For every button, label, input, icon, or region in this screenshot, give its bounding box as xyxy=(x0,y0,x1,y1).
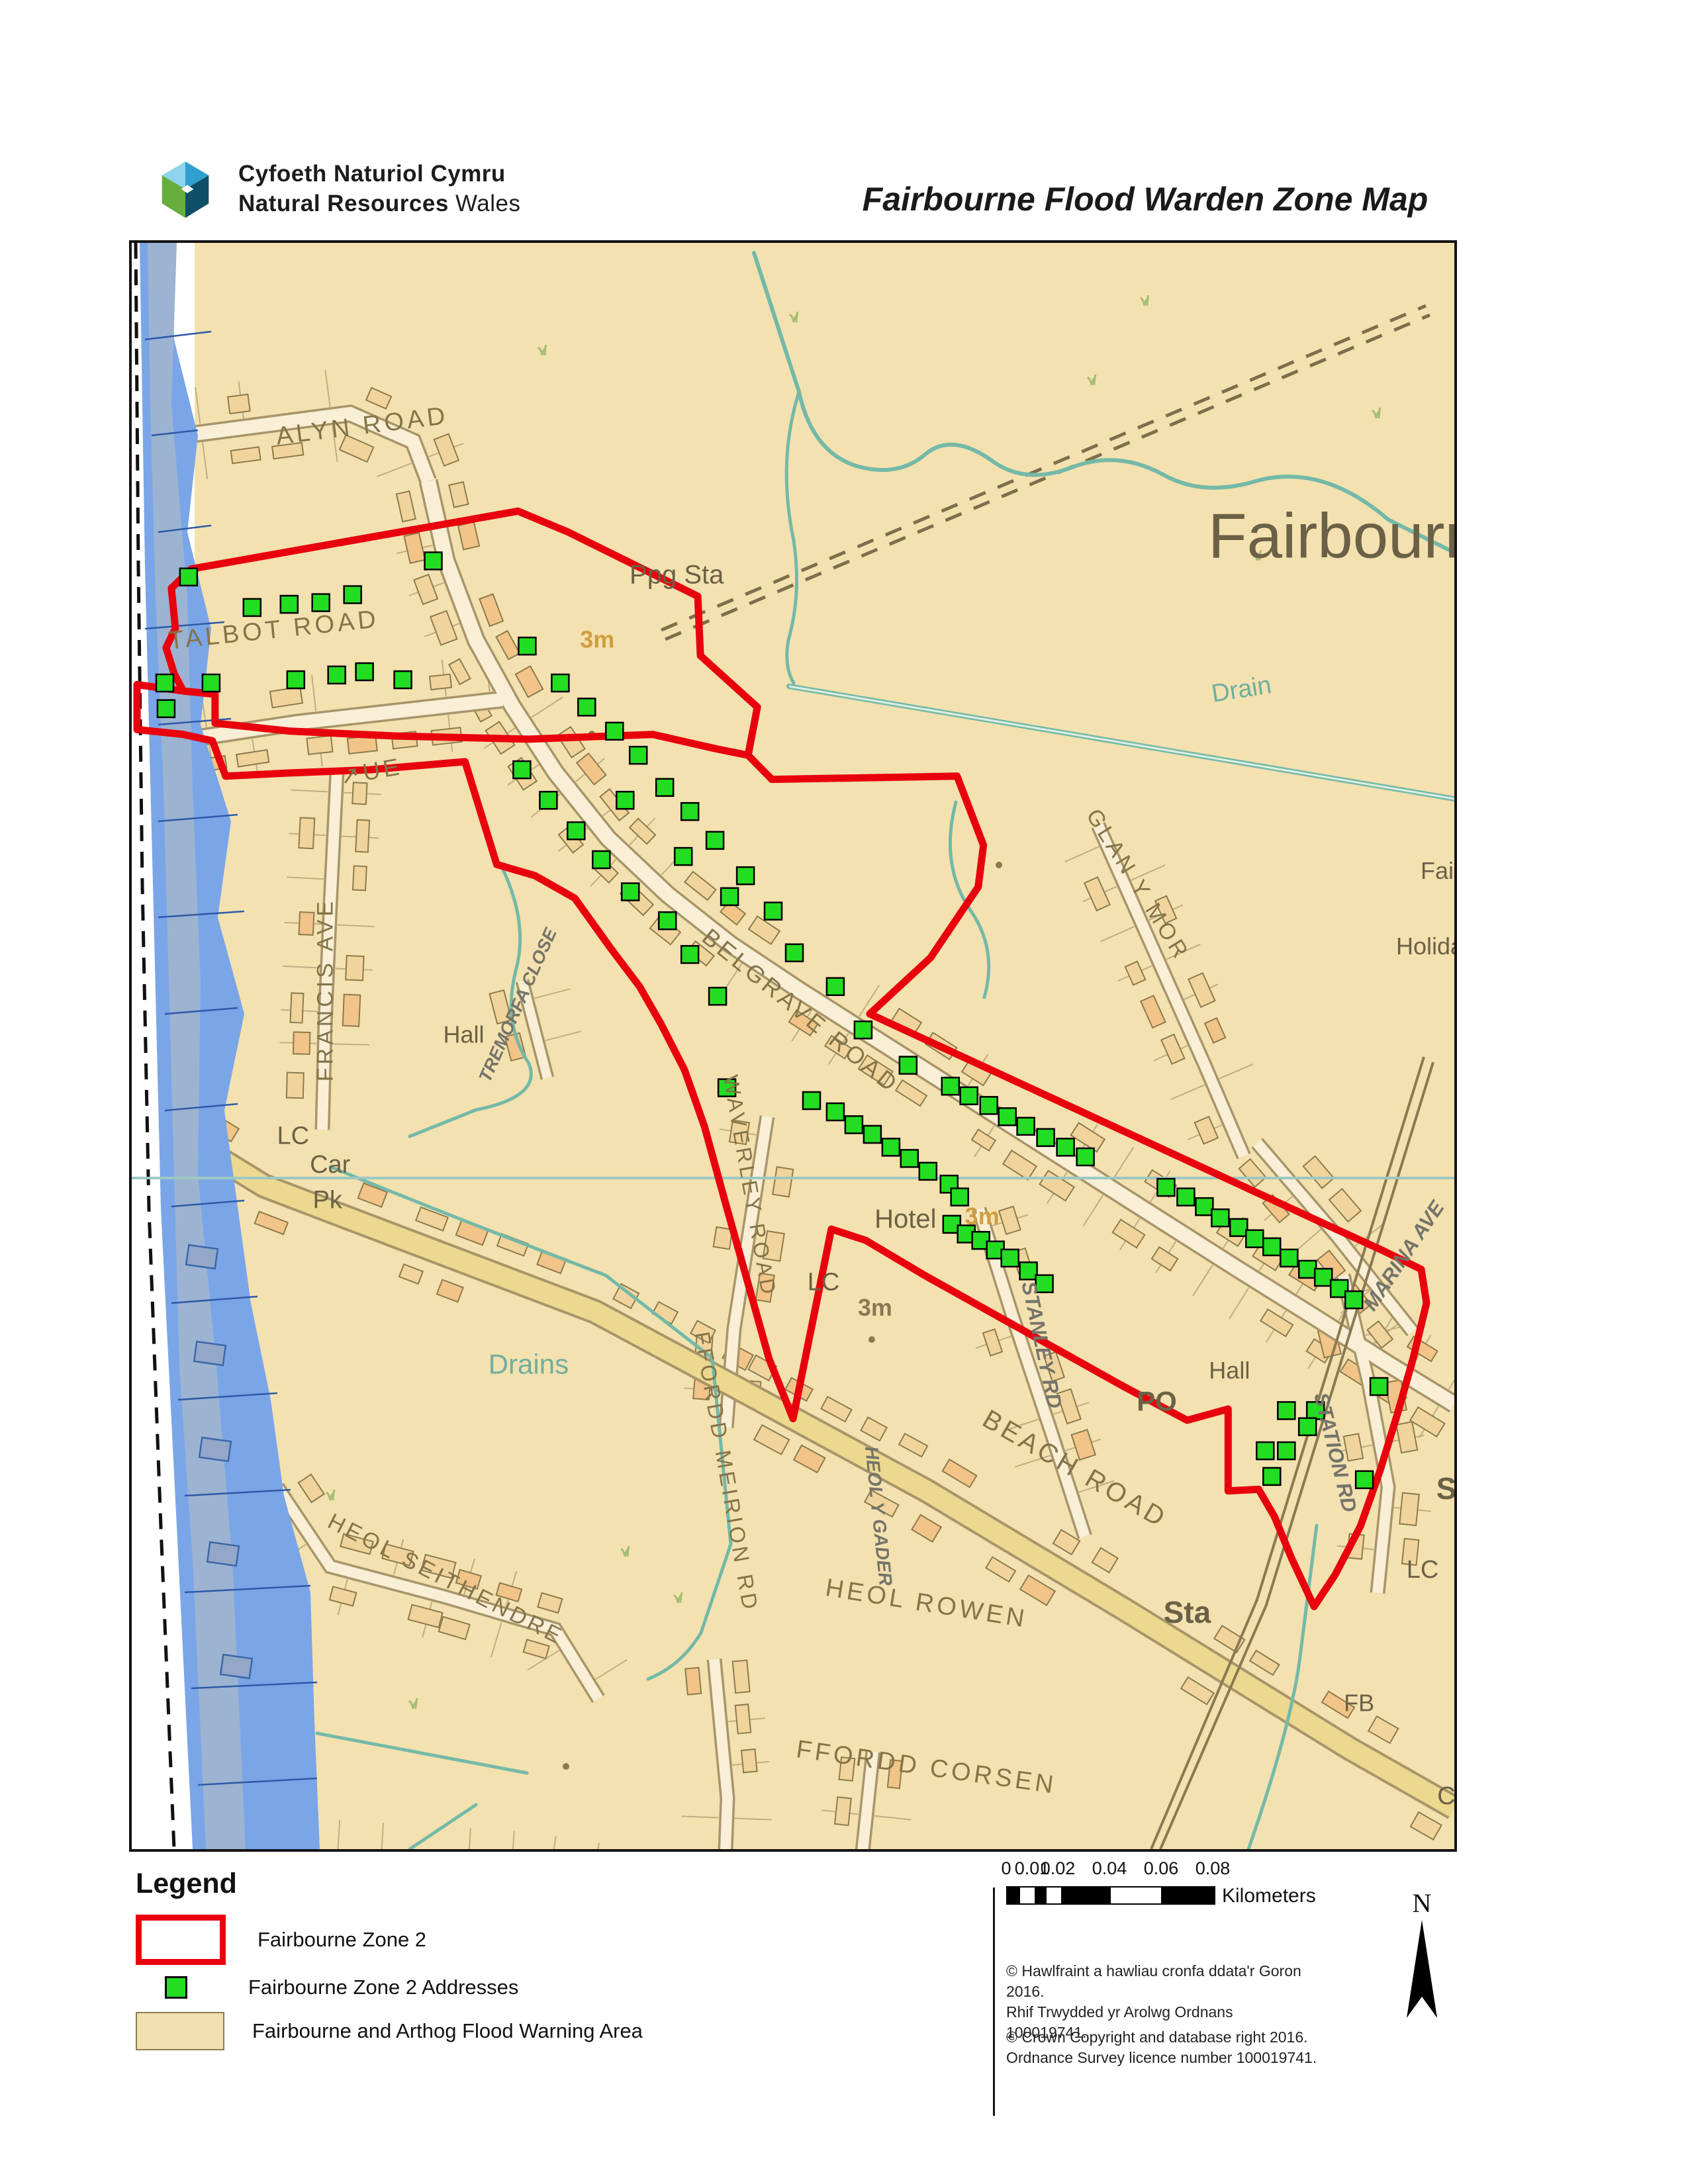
zone2-address-marker xyxy=(737,867,754,884)
zone2-address-marker xyxy=(287,671,305,688)
zone2-address-marker xyxy=(980,1097,998,1114)
map-label: LC xyxy=(1407,1556,1439,1584)
legend-item-zone: Fairbourne Zone 2 xyxy=(136,1915,426,1965)
org-name-english: Natural Resources Wales xyxy=(238,189,520,218)
zone2-address-marker xyxy=(578,698,595,715)
zone2-address-marker xyxy=(622,884,639,901)
map-label: 3m xyxy=(580,626,614,653)
flood-zone-map: ALYN ROADTALBOT ROADPpg StaFairbourneDra… xyxy=(129,240,1457,1852)
map-label: Fairbourne xyxy=(1208,501,1454,572)
scalebar-unit: Kilometers xyxy=(1222,1885,1316,1907)
zone2-address-marker xyxy=(425,553,442,570)
org-name-welsh: Cyfoeth Naturiol Cymru xyxy=(238,159,520,189)
zone2-address-marker xyxy=(1057,1138,1074,1156)
zone2-address-marker xyxy=(827,978,844,995)
zone2-address-marker xyxy=(203,674,220,692)
zone2-address-marker xyxy=(180,569,197,586)
zone2-address-marker xyxy=(1278,1402,1295,1419)
nrw-logo-text: Cyfoeth Naturiol Cymru Natural Resources… xyxy=(238,159,520,218)
zone2-address-marker xyxy=(681,803,698,820)
map-label: Hall xyxy=(443,1021,484,1048)
north-arrow-icon xyxy=(1399,1919,1445,2025)
map-label: LC xyxy=(277,1122,310,1150)
zone2-address-marker xyxy=(1020,1262,1037,1279)
map-label: 3m xyxy=(965,1203,1000,1230)
zone2-address-marker xyxy=(312,594,330,612)
north-label: N xyxy=(1395,1888,1448,1919)
map-label: 3m xyxy=(858,1294,892,1321)
zone2-address-marker xyxy=(1002,1250,1019,1267)
zone2-address-marker xyxy=(1077,1148,1094,1165)
legend-heading: Legend xyxy=(136,1868,237,1900)
zone2-address-marker xyxy=(1315,1269,1332,1286)
zone2-address-marker xyxy=(765,903,782,920)
north-arrow: N xyxy=(1395,1888,1448,2028)
legend-item-warning-area: Fairbourne and Arthog Flood Warning Area xyxy=(136,2012,643,2050)
map-label: FB xyxy=(1344,1689,1374,1716)
zone2-address-marker xyxy=(656,779,673,796)
zone2-address-marker xyxy=(942,1077,959,1095)
scalebar xyxy=(1006,1886,1215,1905)
zone2-address-marker xyxy=(630,747,647,764)
zone2-address-marker xyxy=(616,792,633,809)
zone2-address-marker xyxy=(845,1116,863,1133)
zone2-address-marker xyxy=(855,1021,872,1038)
warning-area-swatch xyxy=(136,2012,224,2050)
address-swatch xyxy=(165,1976,187,1999)
zone2-address-marker xyxy=(328,666,346,684)
map-label: S xyxy=(1436,1471,1454,1506)
copyright-english: © Crown Copyright and database right 201… xyxy=(1006,2027,1317,2068)
map-label: LC xyxy=(808,1268,840,1296)
zone2-address-marker xyxy=(158,700,175,717)
zone2-address-marker xyxy=(356,663,373,680)
zone2-address-marker xyxy=(706,832,724,849)
zone2-address-marker xyxy=(961,1087,978,1105)
page: Cyfoeth Naturiol Cymru Natural Resources… xyxy=(0,0,1688,2184)
legend-item-label: Fairbourne Zone 2 Addresses xyxy=(248,1976,518,1999)
scalebar-tick: 0 xyxy=(1001,1858,1011,1879)
zone2-address-marker xyxy=(156,674,173,692)
zone2-address-marker xyxy=(244,599,261,616)
zone2-address-marker xyxy=(900,1057,917,1074)
map-canvas: ALYN ROADTALBOT ROADPpg StaFairbourneDra… xyxy=(132,243,1454,1849)
zone2-address-marker xyxy=(1230,1219,1247,1236)
zone2-address-marker xyxy=(1017,1118,1035,1135)
zone2-address-marker xyxy=(567,822,585,839)
map-label: Pk xyxy=(313,1187,343,1214)
zone2-address-marker xyxy=(1211,1209,1229,1226)
zone2-address-marker xyxy=(1278,1442,1295,1459)
zone2-address-marker xyxy=(513,761,530,778)
zone2-address-marker xyxy=(1037,1129,1055,1146)
zone2-address-marker xyxy=(1263,1468,1280,1485)
legend-item-label: Fairbourne Zone 2 xyxy=(258,1928,426,1952)
zone2-address-marker xyxy=(1246,1230,1263,1248)
nrw-logo-icon xyxy=(151,159,220,230)
zone2-address-marker xyxy=(1196,1198,1213,1215)
zone2-address-marker xyxy=(344,586,361,604)
map-label: Car xyxy=(310,1151,351,1179)
map-label: C xyxy=(1437,1782,1454,1810)
zone-outline-swatch xyxy=(136,1915,226,1965)
zone2-address-marker xyxy=(1256,1442,1274,1459)
zone2-address-marker xyxy=(1263,1238,1280,1255)
map-label: Hall xyxy=(1209,1357,1250,1384)
zone2-address-marker xyxy=(606,723,623,740)
zone2-address-marker xyxy=(1280,1250,1297,1267)
zone2-address-marker xyxy=(827,1103,844,1120)
zone2-address-marker xyxy=(721,888,738,905)
map-label: Hotel xyxy=(874,1205,936,1234)
zone2-address-marker xyxy=(999,1108,1016,1125)
zone2-address-marker xyxy=(518,637,536,655)
zone2-address-marker xyxy=(592,851,610,868)
page-title: Fairbourne Flood Warden Zone Map xyxy=(814,180,1476,218)
footer-divider xyxy=(993,1888,995,2116)
zone2-address-marker xyxy=(681,946,698,963)
zone2-address-marker xyxy=(1157,1179,1174,1196)
zone2-address-marker xyxy=(864,1126,881,1143)
nrw-logo: Cyfoeth Naturiol Cymru Natural Resources… xyxy=(151,159,520,230)
zone2-address-marker xyxy=(1299,1261,1316,1278)
scalebar-tick: 0.06 xyxy=(1144,1858,1179,1879)
legend-item-addresses: Fairbourne Zone 2 Addresses xyxy=(136,1976,518,1999)
scalebar-tick: 0.02 xyxy=(1041,1858,1076,1879)
zone2-address-marker xyxy=(551,674,569,692)
zone2-address-marker xyxy=(1370,1378,1387,1395)
scalebar-ticks: 00.010.020.040.060.08 xyxy=(1006,1858,1284,1882)
scalebar-tick: 0.08 xyxy=(1196,1858,1231,1879)
zone2-address-marker xyxy=(1177,1189,1194,1206)
zone2-address-marker xyxy=(281,596,298,613)
map-label: Drains xyxy=(489,1349,569,1380)
map-label: Fair xyxy=(1421,857,1454,884)
zone2-address-marker xyxy=(1356,1471,1373,1488)
zone2-address-marker xyxy=(539,792,557,809)
zone2-address-marker xyxy=(901,1150,918,1167)
zone2-address-marker xyxy=(709,987,726,1005)
zone2-address-marker xyxy=(803,1092,820,1109)
map-label: Sta xyxy=(1164,1595,1211,1629)
zone2-address-marker xyxy=(659,912,676,929)
zone2-address-marker xyxy=(919,1163,937,1180)
zone2-address-marker xyxy=(675,848,692,865)
legend-item-label: Fairbourne and Arthog Flood Warning Area xyxy=(252,2019,643,2043)
map-label: Holiday xyxy=(1396,933,1454,960)
map-label: FRANCIS AVE xyxy=(313,898,338,1081)
zone2-address-marker xyxy=(882,1138,900,1156)
map-label: Ppg Sta xyxy=(630,561,724,590)
zone2-address-marker xyxy=(786,944,803,962)
map-label: PO xyxy=(1137,1385,1177,1416)
zone2-address-marker xyxy=(395,671,412,688)
zone2-address-marker xyxy=(1299,1418,1316,1435)
scalebar-tick: 0.04 xyxy=(1092,1858,1127,1879)
